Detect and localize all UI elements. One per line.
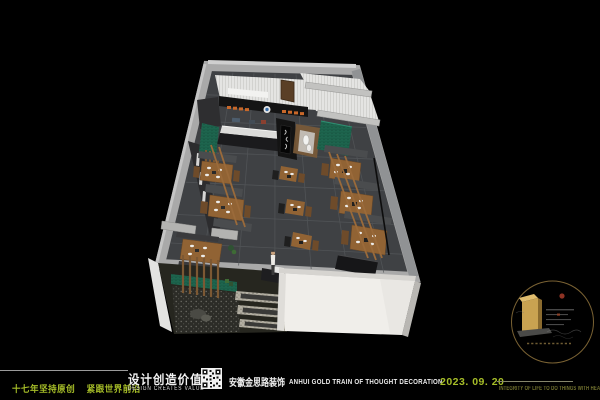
front-facade xyxy=(261,266,421,337)
chair xyxy=(298,173,305,183)
dining-table xyxy=(285,199,305,216)
qr-code xyxy=(201,366,222,391)
company-emblem xyxy=(512,281,594,363)
plant-crate xyxy=(229,282,233,286)
chair xyxy=(233,170,240,182)
slogan-text: 十七年坚持原创紧跟世界前沿 xyxy=(12,382,141,395)
company-name-cn: 安徽金思路装饰 xyxy=(229,374,285,389)
pebble-garden xyxy=(172,286,240,333)
chair xyxy=(244,205,251,218)
wood-door xyxy=(281,80,294,102)
logo-mark xyxy=(265,108,268,111)
chair xyxy=(341,230,349,245)
chair xyxy=(312,240,319,251)
emblem-text-rows xyxy=(546,309,574,325)
display-case xyxy=(293,124,320,158)
motto-text: INTEGRITY OF LIFE TO DO THINGS WITH HEAR… xyxy=(499,386,600,392)
divider-line-right xyxy=(497,381,573,382)
corner-cabinet xyxy=(197,97,221,129)
divider-line-left xyxy=(0,370,128,371)
chair xyxy=(321,163,329,176)
plant-crate xyxy=(225,279,229,283)
slogan-part1: 十七年坚持原创 xyxy=(12,384,75,394)
render-canvas xyxy=(0,0,600,400)
chair xyxy=(193,166,200,178)
date-label: 2023. 09. 20 xyxy=(440,376,504,388)
plant xyxy=(232,250,237,255)
company-name-en: ANHUI GOLD TRAIN OF THOUGHT DECORATION xyxy=(289,377,443,386)
gate-monument-icon xyxy=(517,294,552,337)
garden-rock xyxy=(201,315,211,322)
chair xyxy=(272,170,279,180)
red-sun-icon xyxy=(559,293,564,298)
chair xyxy=(330,196,338,210)
central-banner-column xyxy=(276,118,297,160)
brand-title-en: DESIGN CREATES VALUE xyxy=(128,386,204,392)
emblem-seal-dot xyxy=(557,314,560,316)
chair xyxy=(305,206,312,217)
chair xyxy=(284,236,291,247)
chair xyxy=(278,203,285,214)
chair xyxy=(200,201,208,214)
calligraphy-banner xyxy=(280,125,291,154)
